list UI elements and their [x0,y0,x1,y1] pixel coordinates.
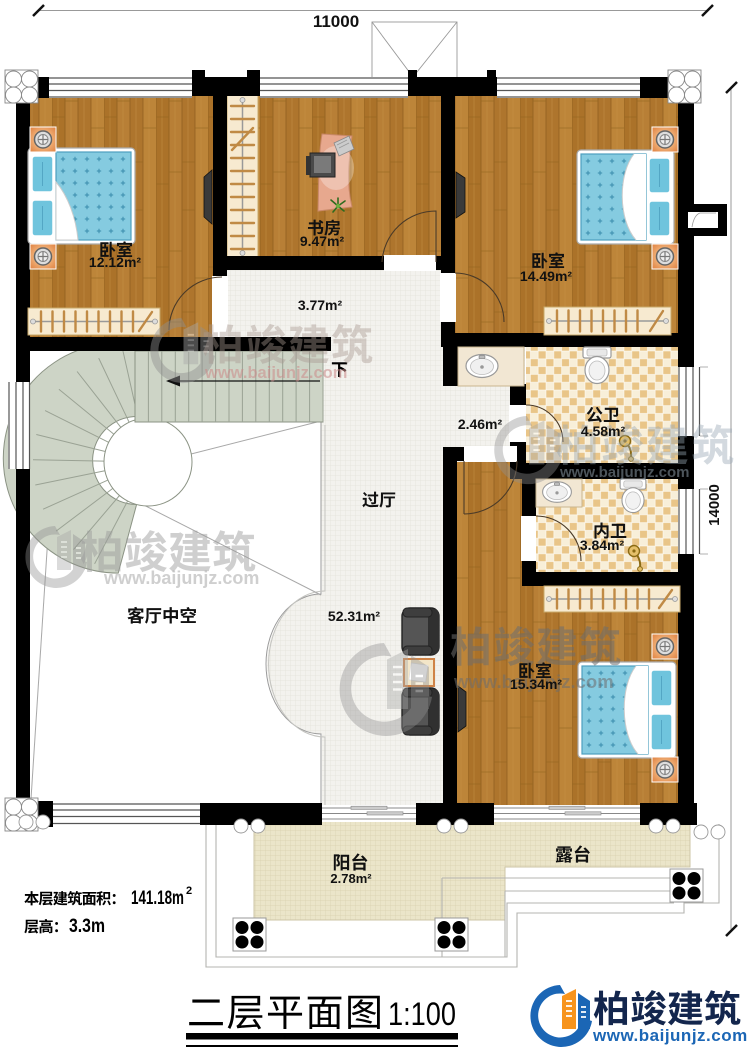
svg-text:14000: 14000 [706,484,723,526]
svg-text:2.78m²: 2.78m² [330,871,372,886]
svg-text:www.baijunjz.com: www.baijunjz.com [204,364,347,382]
svg-text:52.31m²: 52.31m² [328,608,380,624]
svg-text:12.12m²: 12.12m² [89,254,141,270]
svg-text:www.baijunjz.com: www.baijunjz.com [592,1026,748,1045]
svg-text:www.baijunjz.com: www.baijunjz.com [103,568,259,588]
svg-text:15.34m²: 15.34m² [510,676,562,692]
svg-text:www.baijunjz.com: www.baijunjz.com [559,464,689,481]
svg-text:3.3m: 3.3m [69,916,105,937]
svg-text:2: 2 [186,885,192,897]
svg-text:3.77m²: 3.77m² [298,297,343,313]
svg-text:2.46m²: 2.46m² [458,416,503,432]
svg-text:141.18m: 141.18m [131,888,184,909]
svg-text:3.84m²: 3.84m² [580,537,625,553]
svg-text:11000: 11000 [313,12,359,31]
svg-text:14.49m²: 14.49m² [520,268,572,284]
svg-text:1:100: 1:100 [388,996,456,1032]
svg-text:9.47m²: 9.47m² [300,233,345,249]
svg-text:4.58m²: 4.58m² [581,423,626,439]
